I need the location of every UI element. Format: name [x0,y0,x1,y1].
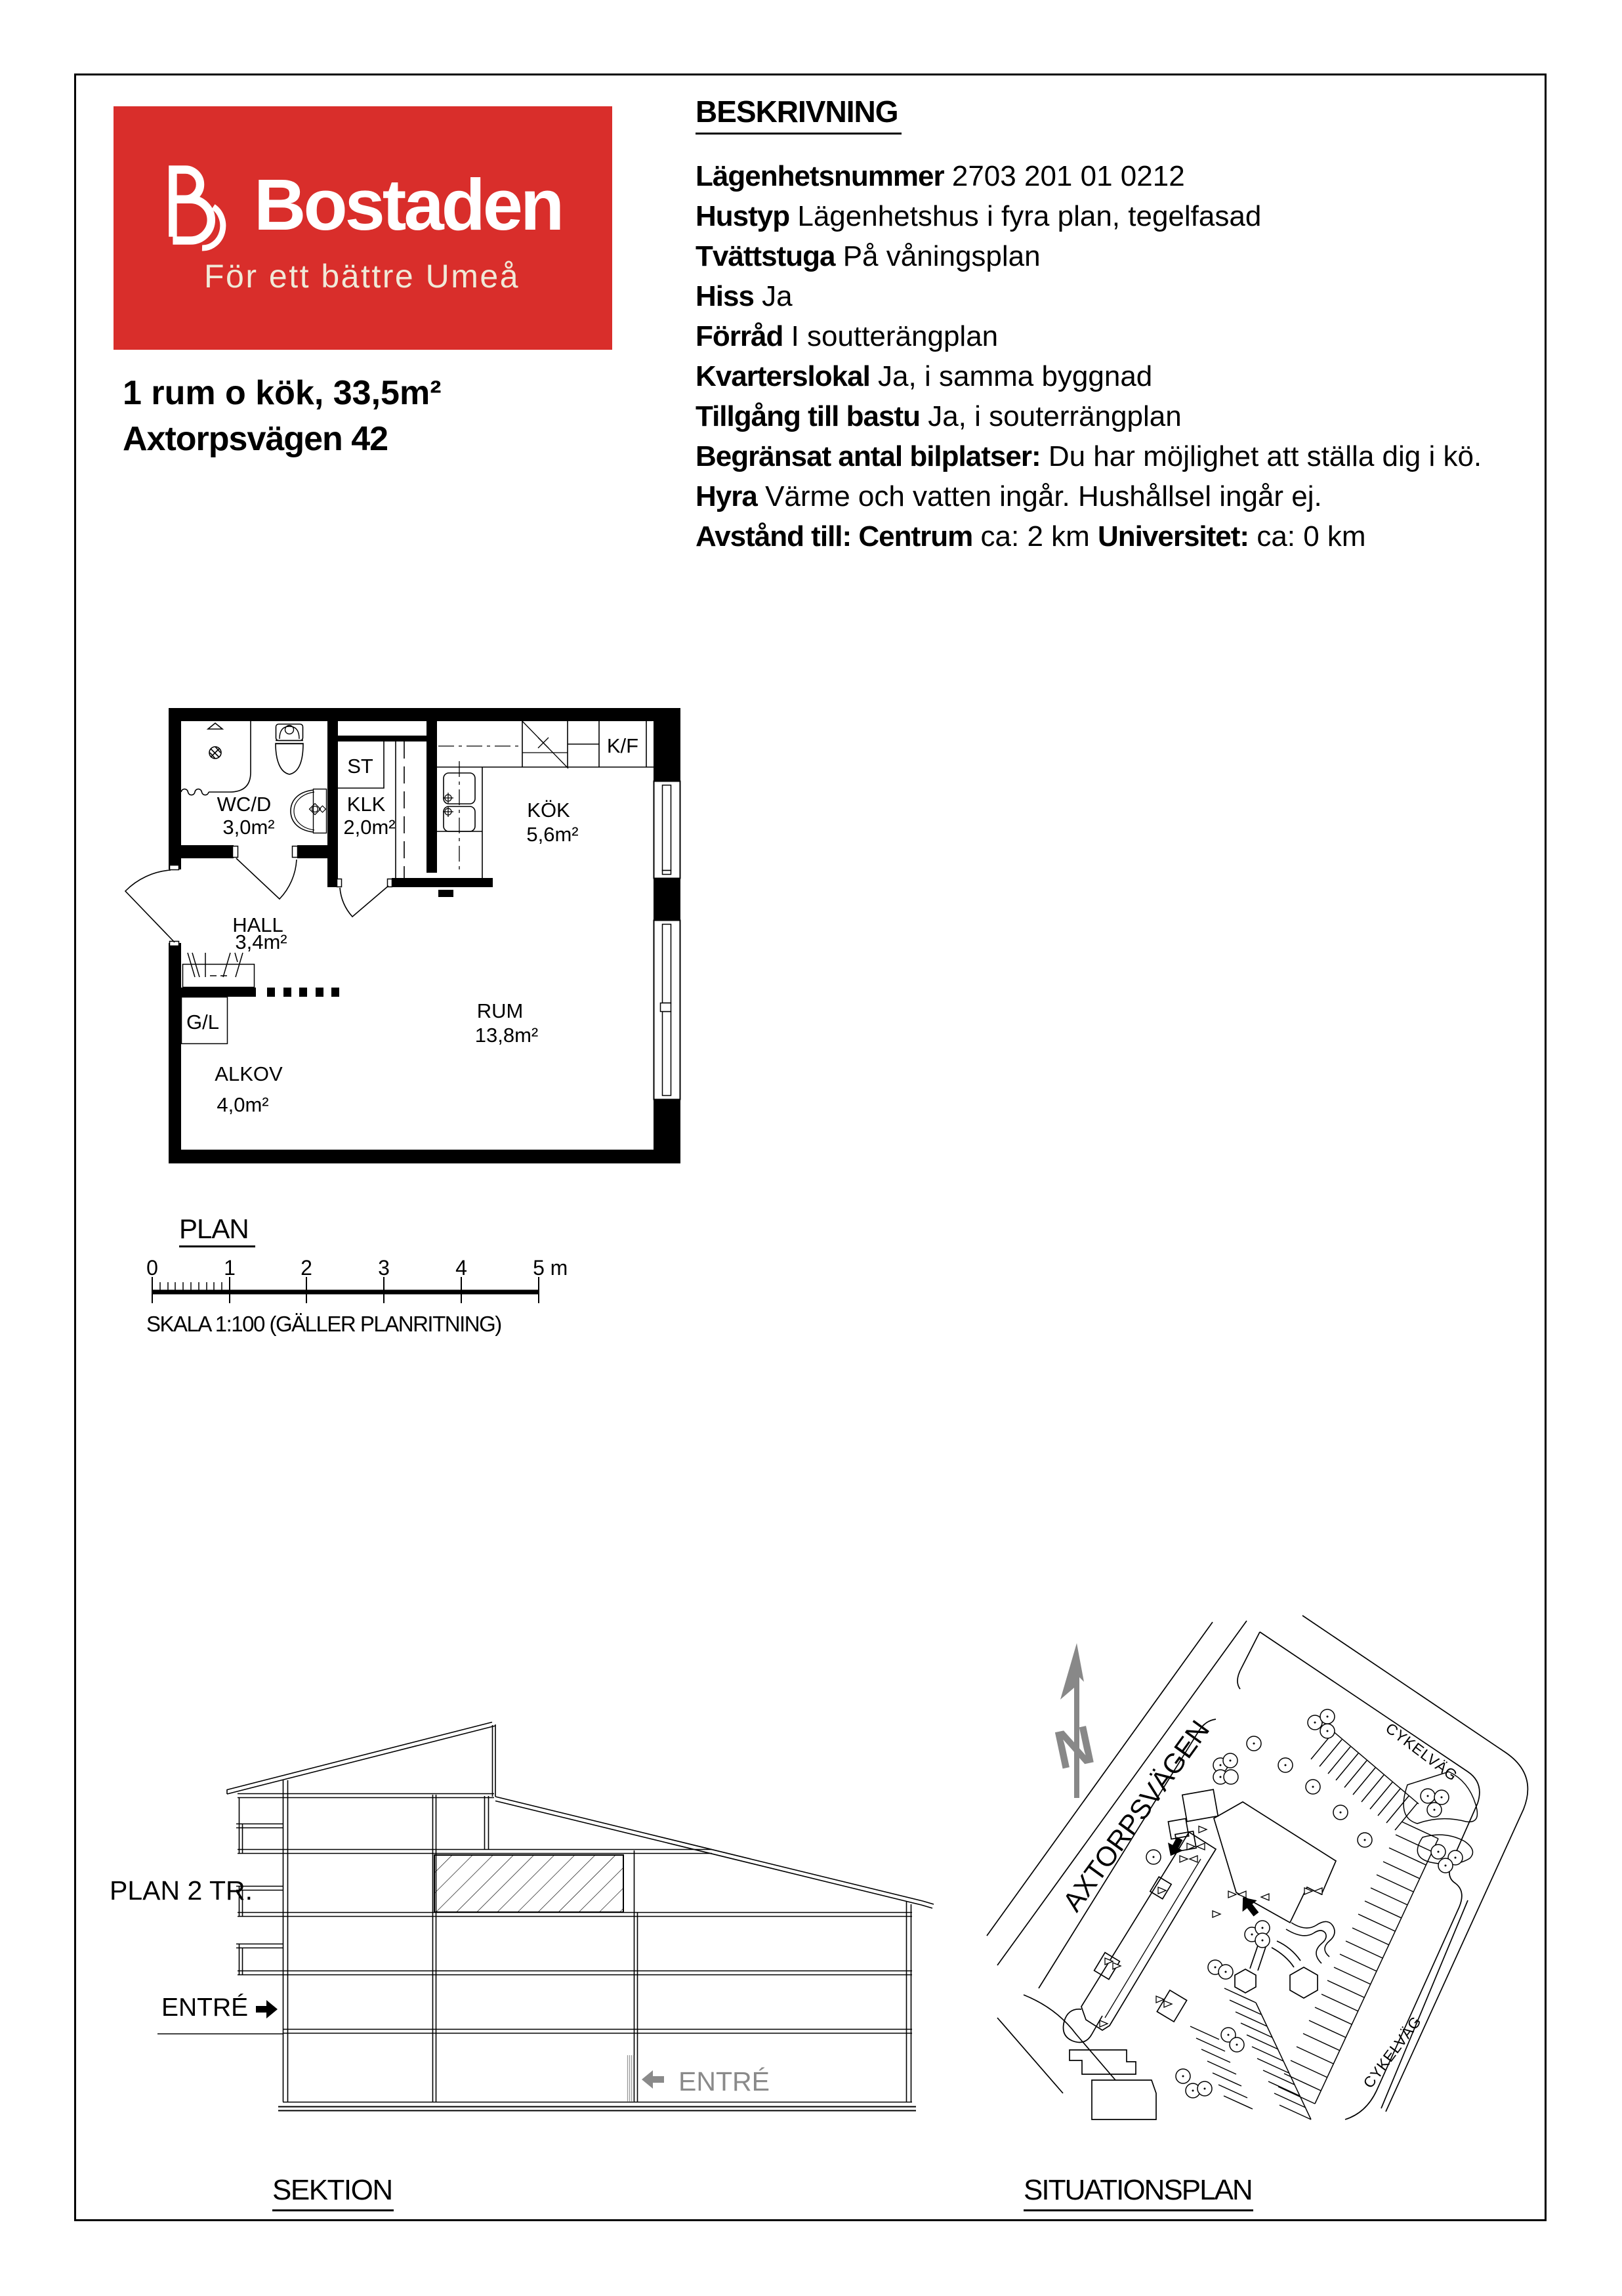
svg-text:13,8m²: 13,8m² [475,1024,538,1047]
svg-text:1: 1 [224,1256,236,1280]
svg-text:ENTRÉ: ENTRÉ [161,1993,248,2022]
svg-text:m: m [551,1256,568,1280]
svg-text:3: 3 [378,1256,390,1280]
svg-text:Bostaden: Bostaden [254,165,562,245]
svg-text:För ett bättre Umeå: För ett bättre Umeå [204,258,520,295]
svg-text:N: N [1049,1715,1100,1781]
svg-text:ALKOV: ALKOV [215,1062,283,1085]
svg-text:4: 4 [455,1256,467,1280]
svg-text:KLK: KLK [347,793,386,816]
svg-text:PLAN 2 TR.: PLAN 2 TR. [110,1875,253,1906]
svg-text:CYKELVÄG: CYKELVÄG [1383,1719,1461,1784]
svg-text:G/L: G/L [186,1011,219,1033]
svg-text:4,0m²: 4,0m² [217,1093,268,1116]
svg-text:WC/D: WC/D [217,793,272,816]
svg-text:5: 5 [533,1256,545,1280]
svg-text:CYKELVÄG: CYKELVÄG [1360,2013,1424,2091]
svg-text:5,6m²: 5,6m² [526,823,578,846]
svg-text:KÖK: KÖK [527,799,570,822]
svg-text:ST: ST [347,755,373,778]
svg-text:3,0m²: 3,0m² [222,816,274,839]
svg-text:0: 0 [146,1256,158,1280]
svg-text:ENTRÉ: ENTRÉ [678,2066,770,2097]
svg-text:2: 2 [301,1256,312,1280]
svg-text:K/F: K/F [607,734,638,757]
svg-text:2,0m²: 2,0m² [343,816,395,839]
svg-text:3,4m²: 3,4m² [235,930,287,953]
svg-text:RUM: RUM [477,999,524,1022]
